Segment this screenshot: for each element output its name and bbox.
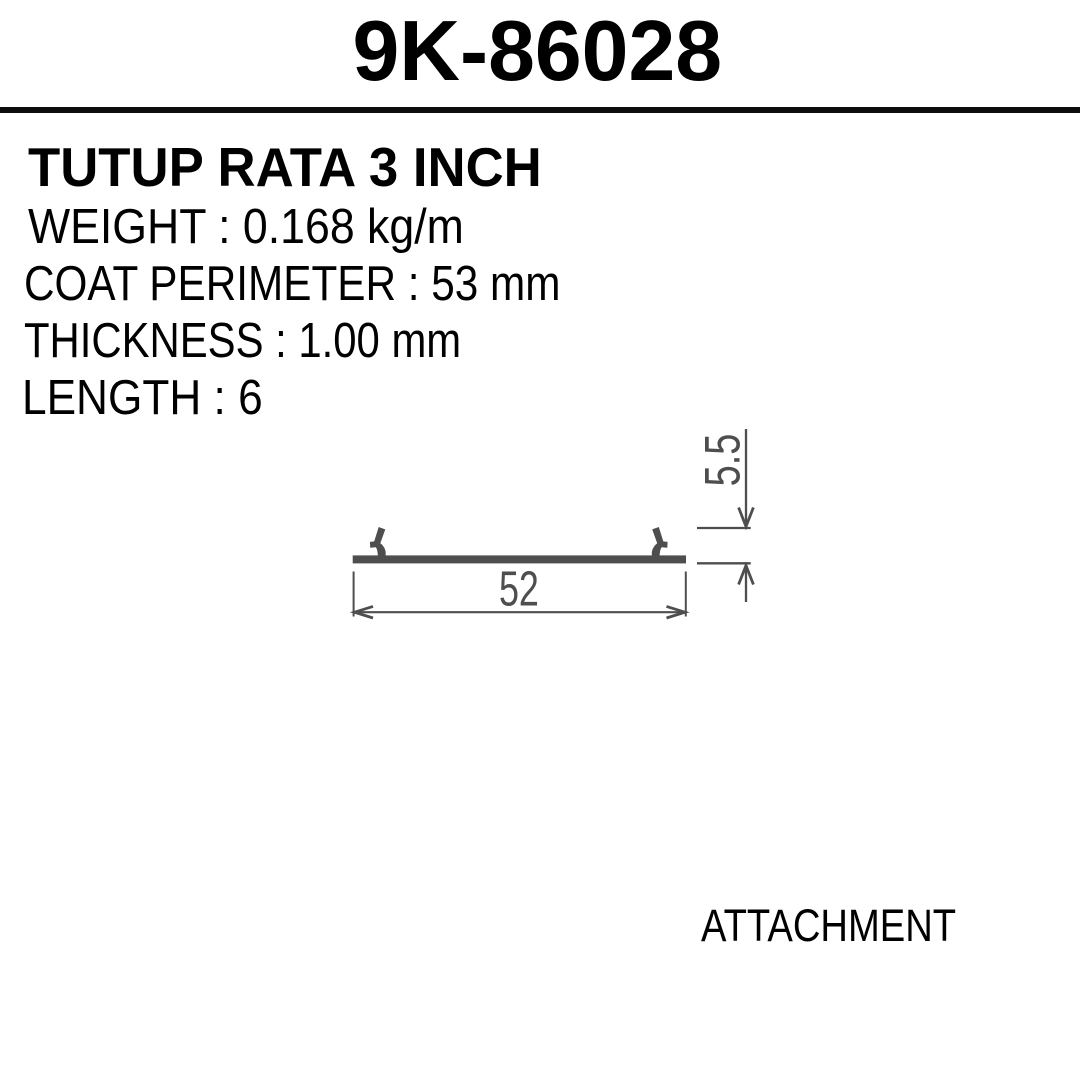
- svg-text:52: 52: [499, 562, 539, 617]
- svg-text:5.5: 5.5: [696, 434, 751, 487]
